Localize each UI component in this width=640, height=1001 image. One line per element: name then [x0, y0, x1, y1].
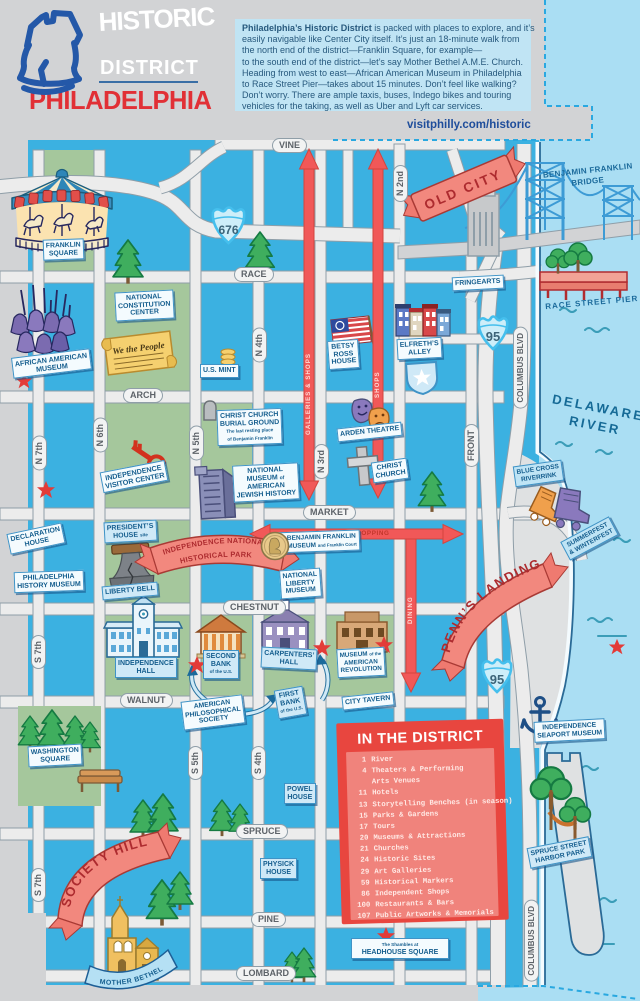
svg-text:676: 676: [218, 223, 238, 237]
svg-text:95: 95: [490, 672, 504, 687]
svg-text:95: 95: [486, 329, 500, 344]
